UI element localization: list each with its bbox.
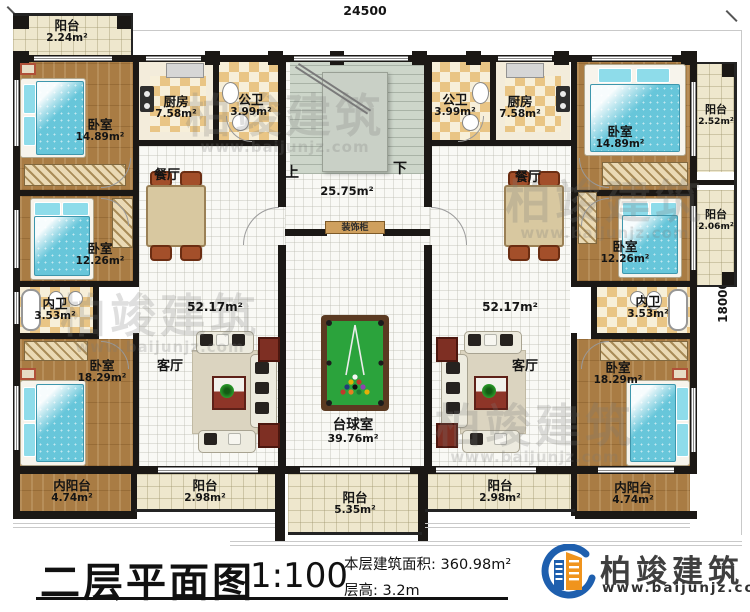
window-top-4 (498, 56, 552, 61)
wall-center-right-a (424, 62, 432, 207)
rail-balcony-r2-bottom (697, 285, 735, 287)
label-living-right-area: 52.17m² (470, 300, 550, 314)
label-bedroom1-left: 卧室14.89m² (55, 118, 145, 144)
slider-bottom-3 (436, 467, 536, 473)
nightstand-bed1L (20, 63, 36, 75)
label-bath-public-left: 公卫3.99m² (211, 93, 291, 119)
dining-table-left (146, 185, 206, 247)
cushion (204, 433, 217, 445)
window-top-5 (592, 56, 672, 61)
boundary-line-top (28, 30, 742, 31)
label-living-left: 客厅 (140, 355, 200, 374)
wall-bed2L-bottom (20, 281, 133, 287)
ground-line-title-1 (230, 541, 742, 542)
cushion (494, 433, 507, 445)
cushion (446, 382, 460, 394)
label-kitchen-right: 厨房7.58m² (480, 95, 560, 121)
plant-right (482, 384, 496, 398)
label-bedroom2-left: 卧室12.26m² (55, 242, 145, 268)
bed1L-pillow1 (23, 84, 36, 114)
wall-hall-bottom-right (383, 229, 430, 236)
stub-8 (681, 51, 697, 65)
cushion (228, 433, 241, 445)
wall-bed1L-bottom (20, 190, 133, 196)
label-inner-balcony-left: 内阳台4.74m² (26, 479, 118, 505)
window-top-3 (294, 56, 408, 61)
label-balcony-top-left: 阳台2.24m² (27, 19, 107, 45)
wall-ibalcR-bottom (575, 511, 697, 519)
corner-tick-right (726, 10, 738, 22)
label-kitchen-left: 厨房7.58m² (136, 95, 216, 121)
cushion (255, 362, 269, 374)
label-stair-up: 上 (282, 162, 302, 182)
stub-2 (205, 51, 220, 65)
column-balcony-left (275, 474, 285, 542)
wall-ibalcL-bottom (13, 511, 137, 519)
rail-balcony-bl (135, 509, 275, 512)
decor-cabinet-label: 装饰柜 (341, 223, 368, 233)
rail-balcony-center (288, 532, 422, 535)
label-inner-balcony-right: 内阳台4.74m² (587, 481, 679, 507)
ground-line-left2 (13, 527, 275, 528)
rail-balcony-r1-top (697, 62, 735, 64)
ground-line-right (425, 523, 690, 524)
plant-left (220, 384, 234, 398)
dimension-width: 24500 (285, 3, 445, 18)
bed2L-pillow1 (34, 202, 61, 216)
bed3L-pillow1 (23, 387, 36, 421)
bed3L-mattress (36, 384, 84, 462)
stove-right-burner1 (560, 91, 566, 97)
label-dining-right: 餐厅 (498, 166, 558, 185)
cushion (500, 334, 513, 346)
wall-hall-bottom-left (285, 229, 327, 236)
label-bath-private-left: 内卫3.53m² (15, 297, 95, 323)
company-logo-icon (540, 544, 596, 604)
label-balcony-center: 阳台5.35m² (310, 491, 400, 517)
bed3L-pillow2 (23, 423, 36, 457)
cushion (446, 362, 460, 374)
drawing-scale: 1:100 (250, 556, 348, 596)
cushion (232, 334, 245, 346)
title-underline (36, 597, 508, 600)
stub-3 (268, 51, 283, 65)
wardrobe-bed3L (24, 341, 88, 361)
chair-R4 (538, 245, 560, 261)
company-logo-url: www.baijunjz.com (602, 580, 750, 596)
label-balcony-right-lower: 阳台2.06m² (694, 209, 738, 232)
cushion (255, 402, 269, 414)
stub-5 (412, 51, 427, 65)
bed1R-pillow2 (636, 68, 670, 83)
staircase-landing (322, 72, 388, 172)
bed3R-pillow1 (676, 387, 689, 421)
pool-table (321, 315, 389, 411)
label-stair-down: 下 (390, 158, 410, 178)
wall-privR-bottom (597, 333, 690, 339)
bed1L-pillow2 (23, 116, 36, 146)
boundary-line-right (741, 30, 742, 535)
cushion (446, 402, 460, 414)
cushion (484, 334, 497, 346)
tv-cabinet-left-2 (258, 423, 280, 448)
cushion (468, 334, 481, 346)
label-dining-left: 餐厅 (137, 164, 197, 183)
rail-balcony-tl-right (131, 13, 133, 55)
chair-R3 (508, 245, 530, 261)
window-left-1 (14, 80, 19, 146)
dining-table-right (504, 185, 564, 247)
label-bedroom3-left: 卧室18.29m² (57, 359, 147, 385)
wall-kitchen-bottom-left (133, 140, 284, 146)
decor-cabinet: 装饰柜 (325, 221, 385, 234)
bed3R-mattress (630, 384, 676, 462)
sink-right (506, 63, 544, 78)
wall-balcR-divider (697, 180, 737, 185)
stove-right-burner2 (560, 103, 566, 109)
slider-bottom-2 (300, 467, 410, 473)
wall-center-left-a (278, 62, 286, 207)
wall-privL-bottom (20, 333, 93, 339)
wall-bed3R-left (571, 333, 577, 466)
cushion (216, 334, 229, 346)
wall-bed3L-right (133, 333, 139, 466)
label-balcony-right-upper: 阳台2.52m² (694, 104, 738, 127)
window-right-3 (691, 388, 696, 452)
rail-balcony-right-outer (734, 62, 737, 287)
nightstand-bed3R (672, 368, 688, 380)
label-hall-area: 25.75m² (305, 184, 389, 198)
tv-cabinet-right-2 (436, 423, 458, 448)
bed2R-pillow2 (650, 202, 677, 216)
bed2L-pillow2 (62, 202, 89, 216)
rail-balcony-tl-top (13, 13, 133, 16)
chair-L4 (180, 245, 202, 261)
floor-area-text: 本层建筑面积: 360.98m² (344, 553, 511, 574)
ground-line-right2 (425, 527, 690, 528)
tv-cabinet-left-1 (258, 337, 280, 362)
stub-7 (554, 51, 569, 65)
label-bedroom1-right: 卧室14.89m² (575, 125, 665, 151)
chair-L3 (150, 245, 172, 261)
label-bedroom3-right: 卧室18.29m² (573, 361, 663, 387)
ground-line-left (13, 523, 275, 524)
bed2R-pillow1 (622, 202, 649, 216)
label-bath-private-right: 内卫3.53m² (608, 295, 688, 321)
wall-center-right-b (424, 245, 432, 466)
slider-bottom-1 (158, 467, 258, 473)
sink-left (166, 63, 204, 78)
cushion (200, 334, 213, 346)
window-left-2 (14, 210, 19, 268)
floor-plan-page: { "dims": { "top": "24500", "right": "18… (0, 0, 750, 612)
nightstand-bed3L (20, 368, 36, 380)
window-top-2 (146, 56, 201, 61)
window-left-4 (14, 386, 19, 450)
cushion (255, 382, 269, 394)
wardrobe-bed3R (600, 341, 688, 361)
rail-balcony-br (425, 509, 575, 512)
label-living-right: 客厅 (495, 355, 555, 374)
bed1R-pillow1 (598, 68, 632, 83)
slider-bottom-4 (598, 467, 674, 473)
label-billiard-room: 台球室39.76m² (303, 418, 403, 446)
label-bedroom2-right: 卧室12.26m² (580, 240, 670, 266)
window-top-1 (34, 56, 112, 61)
wall-bed2R-left (571, 196, 577, 287)
label-living-left-area: 52.17m² (175, 300, 255, 314)
label-balcony-bottom-right: 阳台2.98m² (455, 479, 545, 505)
cushion (470, 433, 483, 445)
stub-6 (466, 51, 481, 65)
floor-height-text: 层高: 3.2m (344, 579, 420, 600)
bed3R-pillow2 (676, 423, 689, 457)
label-balcony-bottom-left: 阳台2.98m² (160, 479, 250, 505)
wall-privR-left (591, 287, 597, 339)
wardrobe-bed1R (602, 162, 688, 186)
tv-cabinet-right-1 (436, 337, 458, 362)
wall-kitchen-bottom-right (426, 140, 576, 146)
